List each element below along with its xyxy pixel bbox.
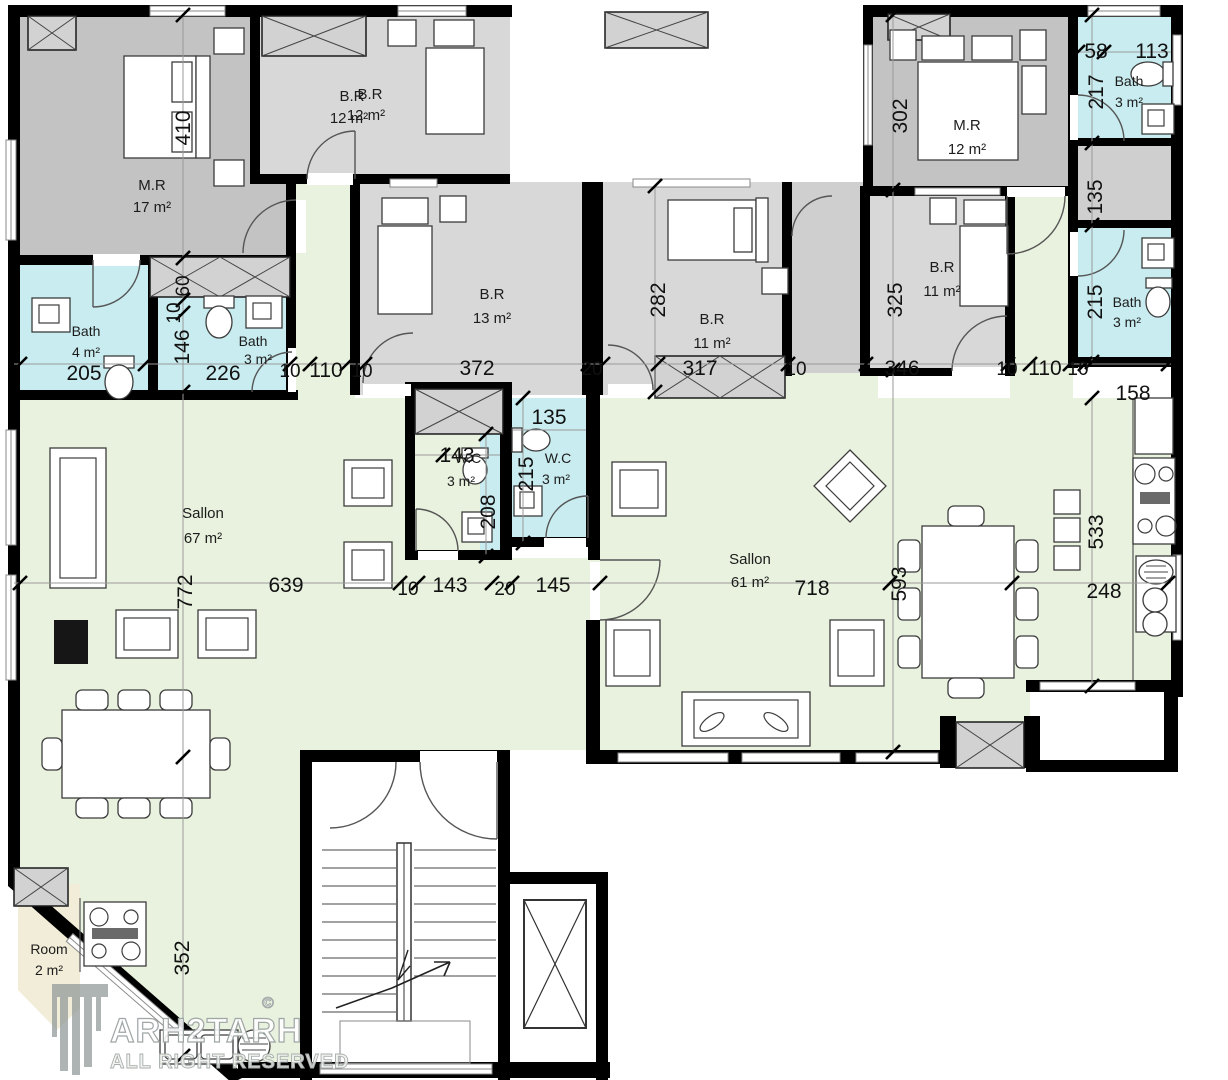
dim-282: 282 [647, 282, 670, 317]
dim-317: 317 [682, 357, 717, 380]
dim-208: 208 [477, 494, 500, 529]
dim-215a: 215 [1084, 284, 1107, 319]
dim-145: 145 [535, 574, 570, 597]
svg-text:13 m²: 13 m² [473, 310, 511, 327]
dim-410: 410 [172, 110, 195, 145]
dim-352: 352 [171, 940, 194, 975]
svg-text:11 m²: 11 m² [693, 335, 730, 352]
svg-text:B.R: B.R [929, 259, 954, 276]
dim-10g: 10 [397, 579, 418, 600]
dim-158: 158 [1115, 382, 1150, 405]
svg-text:3 m²: 3 m² [1113, 314, 1141, 330]
svg-text:4 m²: 4 m² [72, 344, 100, 360]
dim-593: 593 [888, 566, 911, 601]
svg-text:2 m²: 2 m² [35, 962, 63, 978]
hall-a-fill [790, 182, 868, 376]
dim-10d: 10 [785, 359, 806, 380]
svg-text:Sallon: Sallon [182, 505, 224, 522]
svg-text:3 m²: 3 m² [542, 471, 570, 487]
dim-110b: 110 [1028, 357, 1061, 380]
dim-10a: 10 [164, 302, 185, 323]
dim-143b: 143 [432, 574, 467, 597]
dim-135a: 135 [1084, 179, 1107, 214]
dim-533: 533 [1085, 514, 1108, 549]
svg-text:11 m²: 11 m² [923, 283, 960, 300]
dim-135b: 135 [531, 406, 566, 429]
dim-146: 146 [171, 329, 194, 364]
dim-215b: 215 [515, 456, 538, 491]
dim-302: 302 [889, 98, 912, 133]
dim-205: 205 [66, 362, 101, 385]
dim-226: 226 [205, 362, 240, 385]
dim-10b: 10 [279, 361, 300, 382]
dim-20a: 20 [581, 359, 602, 380]
svg-text:Bath: Bath [239, 333, 268, 349]
dim-217: 217 [1085, 74, 1108, 109]
svg-text:3 m²: 3 m² [447, 473, 475, 489]
dim-10f: 10 [1067, 359, 1088, 380]
svg-text:3 m²: 3 m² [244, 351, 272, 367]
dim-639: 639 [268, 574, 303, 597]
svg-text:12 m²: 12 m² [948, 141, 986, 158]
dim-10c: 10 [351, 361, 372, 382]
dim-113: 113 [1135, 40, 1168, 63]
terrace [1030, 692, 1173, 766]
dim-248: 248 [1086, 580, 1121, 603]
dim-718: 718 [794, 577, 829, 600]
dim-772: 772 [174, 574, 197, 609]
svg-text:67 m²: 67 m² [184, 530, 222, 547]
svg-text:3 m²: 3 m² [1115, 94, 1143, 110]
svg-text:Bath: Bath [72, 323, 101, 339]
svg-text:Bath: Bath [1113, 294, 1142, 310]
watermark-copyright: © [262, 995, 274, 1012]
floor-plan: M.R 17 m² B.R 12 m² B.R 12 m² B.R 13 m² … [0, 0, 1228, 1080]
dim-20b: 20 [494, 579, 515, 600]
dim-60: 60 [173, 275, 194, 296]
elevator [524, 900, 586, 1028]
dim-58: 58 [1084, 40, 1107, 63]
dim-325: 325 [884, 282, 907, 317]
svg-text:12 m²: 12 m² [347, 107, 385, 124]
dim-346: 346 [884, 357, 919, 380]
svg-text:Bath: Bath [1115, 73, 1144, 89]
watermark-tagline: ALL RIGHT RESERVED [110, 1051, 350, 1073]
svg-text:Sallon: Sallon [729, 551, 771, 568]
dim-372: 372 [459, 357, 494, 380]
dim-143a: 143 [439, 444, 474, 467]
watermark-brand: ARH2TARH [110, 1012, 302, 1050]
svg-text:B.R: B.R [357, 86, 382, 103]
dim-110a: 110 [309, 359, 342, 382]
svg-text:17 m²: 17 m² [133, 199, 171, 216]
svg-text:B.R: B.R [479, 286, 504, 303]
bath3b-fixtures [1142, 238, 1174, 317]
dim-10e: 10 [996, 359, 1017, 380]
svg-text:W.C: W.C [545, 450, 571, 466]
svg-text:Room: Room [30, 941, 67, 957]
svg-text:M.R: M.R [138, 177, 166, 194]
svg-text:B.R: B.R [699, 311, 724, 328]
svg-text:61 m²: 61 m² [731, 574, 769, 591]
svg-text:M.R: M.R [953, 117, 981, 134]
floor-plan-svg: M.R 17 m² B.R 12 m² B.R 12 m² B.R 13 m² … [0, 0, 1228, 1080]
